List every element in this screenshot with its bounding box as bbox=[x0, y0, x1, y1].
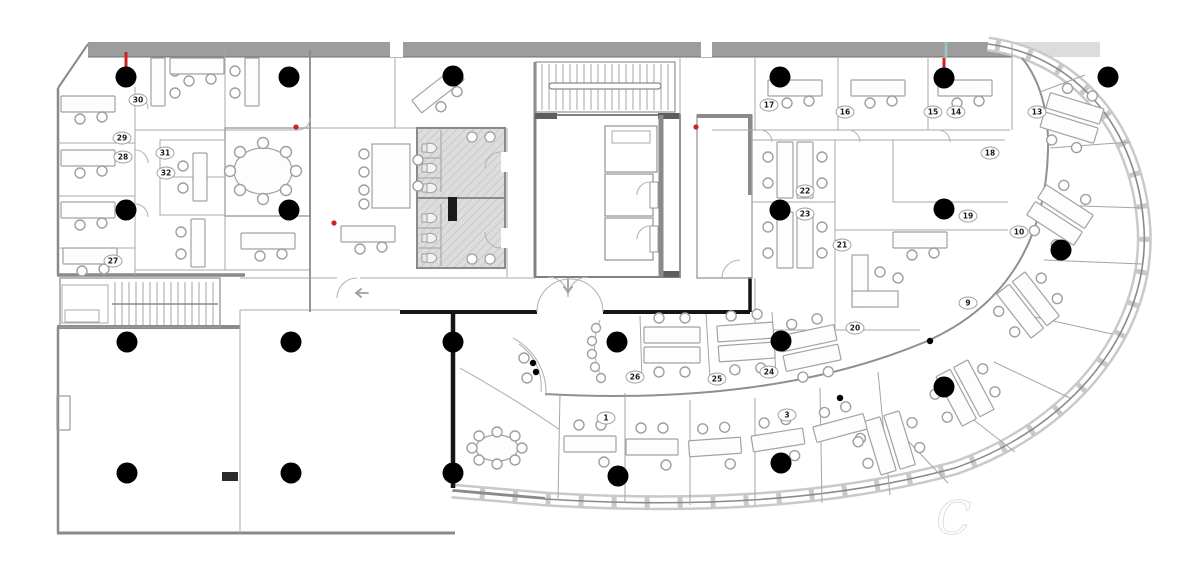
sensor-dot bbox=[279, 200, 300, 221]
room-number-label: 28 bbox=[114, 151, 132, 163]
round-table bbox=[467, 427, 527, 469]
room-number-text: 17 bbox=[764, 101, 774, 110]
mini-dot bbox=[533, 369, 539, 375]
sensor-dot bbox=[770, 200, 791, 221]
room-number-text: 28 bbox=[118, 153, 128, 162]
sensor-dot bbox=[443, 463, 464, 484]
sensor-dot bbox=[443, 66, 464, 87]
room-number-text: 16 bbox=[840, 108, 850, 117]
room-number-text: 14 bbox=[951, 108, 961, 117]
room-number-label: 27 bbox=[104, 255, 122, 267]
sensor-dot bbox=[117, 463, 138, 484]
sensor-dot bbox=[607, 332, 628, 353]
room-number-label: 25 bbox=[708, 373, 726, 385]
room-number-label: 24 bbox=[760, 366, 778, 378]
sensor-dot bbox=[443, 332, 464, 353]
room-number-text: 27 bbox=[108, 257, 118, 266]
room-number-label: 22 bbox=[796, 185, 814, 197]
room-number-label: 14 bbox=[947, 106, 965, 118]
sensor-dot bbox=[1098, 67, 1119, 88]
room-number-text: 9 bbox=[965, 299, 970, 308]
mini-dot bbox=[530, 360, 536, 366]
stairwell-left bbox=[60, 278, 220, 327]
sensor-dot bbox=[116, 200, 137, 221]
room-number-label: 30 bbox=[129, 94, 147, 106]
room-number-text: 19 bbox=[963, 212, 973, 221]
elevator-cab bbox=[605, 174, 653, 216]
down-arrow-icon bbox=[564, 279, 572, 292]
room-number-text: 18 bbox=[985, 149, 995, 158]
sink bbox=[467, 132, 477, 142]
room-number-text: 30 bbox=[133, 96, 143, 105]
room-number-text: 26 bbox=[630, 373, 640, 382]
sensor-dot bbox=[934, 199, 955, 220]
room-number-layer: 3029283132271716151413222318192110920262… bbox=[104, 94, 1046, 424]
sensor-dot bbox=[279, 67, 300, 88]
sink bbox=[485, 132, 495, 142]
elevator-cab bbox=[605, 218, 653, 260]
circulation-arrows bbox=[356, 279, 572, 297]
room-number-label: 29 bbox=[113, 132, 131, 144]
sink bbox=[485, 254, 495, 264]
room-number-label: 15 bbox=[924, 106, 942, 118]
room-number-text: 10 bbox=[1014, 228, 1024, 237]
room-number-text: 24 bbox=[764, 368, 774, 377]
room-number-text: 32 bbox=[161, 169, 171, 178]
red-dot bbox=[293, 124, 298, 129]
restroom-door-mark bbox=[448, 197, 457, 221]
bench-arc bbox=[588, 320, 606, 383]
sensor-dot bbox=[934, 377, 955, 398]
room-number-label: 9 bbox=[959, 297, 977, 309]
watermark-initial: C bbox=[936, 491, 971, 545]
sensor-dot bbox=[1051, 240, 1072, 261]
room-number-text: 15 bbox=[928, 108, 938, 117]
room-number-text: 3 bbox=[784, 411, 789, 420]
reception-desk bbox=[513, 338, 546, 396]
room-number-label: 32 bbox=[157, 167, 175, 179]
room-number-label: 13 bbox=[1028, 106, 1046, 118]
room-number-text: 22 bbox=[800, 187, 810, 196]
room-number-label: 31 bbox=[156, 147, 174, 159]
sensor-dot bbox=[281, 332, 302, 353]
stairs-center bbox=[542, 64, 668, 110]
room-number-label: 3 bbox=[778, 409, 796, 421]
room-number-label: 16 bbox=[836, 106, 854, 118]
sensor-dot bbox=[117, 332, 138, 353]
room-number-label: 1 bbox=[597, 412, 615, 424]
mini-dot bbox=[927, 338, 933, 344]
room-number-label: 23 bbox=[796, 208, 814, 220]
room-number-label: 20 bbox=[846, 322, 864, 334]
conference-table bbox=[225, 138, 302, 205]
room-number-text: 31 bbox=[160, 149, 170, 158]
sensor-dot bbox=[608, 466, 629, 487]
room-number-label: 17 bbox=[760, 99, 778, 111]
long-table bbox=[359, 144, 423, 209]
room-number-text: 21 bbox=[837, 241, 847, 250]
red-dot bbox=[693, 124, 698, 129]
sensor-dot bbox=[771, 331, 792, 352]
watermark-logo: C bbox=[936, 491, 1127, 545]
room-number-text: 1 bbox=[603, 414, 608, 423]
sensor-dot bbox=[770, 67, 791, 88]
room-number-label: 21 bbox=[833, 239, 851, 251]
sensor-dot bbox=[281, 463, 302, 484]
room-number-label: 18 bbox=[981, 147, 999, 159]
mini-dot bbox=[837, 395, 843, 401]
door-threshold-mark bbox=[222, 472, 238, 481]
elevator-bank bbox=[605, 126, 658, 260]
sensor-dot bbox=[934, 68, 955, 89]
sensor-dot bbox=[116, 67, 137, 88]
room-number-text: 23 bbox=[800, 210, 810, 219]
room-number-label: 10 bbox=[1010, 226, 1028, 238]
room-number-text: 20 bbox=[850, 324, 860, 333]
room-number-text: 29 bbox=[117, 134, 127, 143]
left-arrow-icon bbox=[356, 289, 368, 297]
red-dot bbox=[331, 220, 336, 225]
room-number-label: 26 bbox=[626, 371, 644, 383]
l-desk bbox=[852, 255, 903, 307]
floor-plan-canvas: 3029283132271716151413222318192110920262… bbox=[0, 0, 1200, 580]
top-wall-band bbox=[88, 42, 1012, 57]
room-number-text: 13 bbox=[1032, 108, 1042, 117]
sink bbox=[467, 254, 477, 264]
room-number-label: 19 bbox=[959, 210, 977, 222]
floor-plan-svg: 3029283132271716151413222318192110920262… bbox=[0, 0, 1200, 580]
sensor-dot bbox=[771, 453, 792, 474]
room-number-text: 25 bbox=[712, 375, 722, 384]
furniture-layer bbox=[61, 58, 1108, 479]
